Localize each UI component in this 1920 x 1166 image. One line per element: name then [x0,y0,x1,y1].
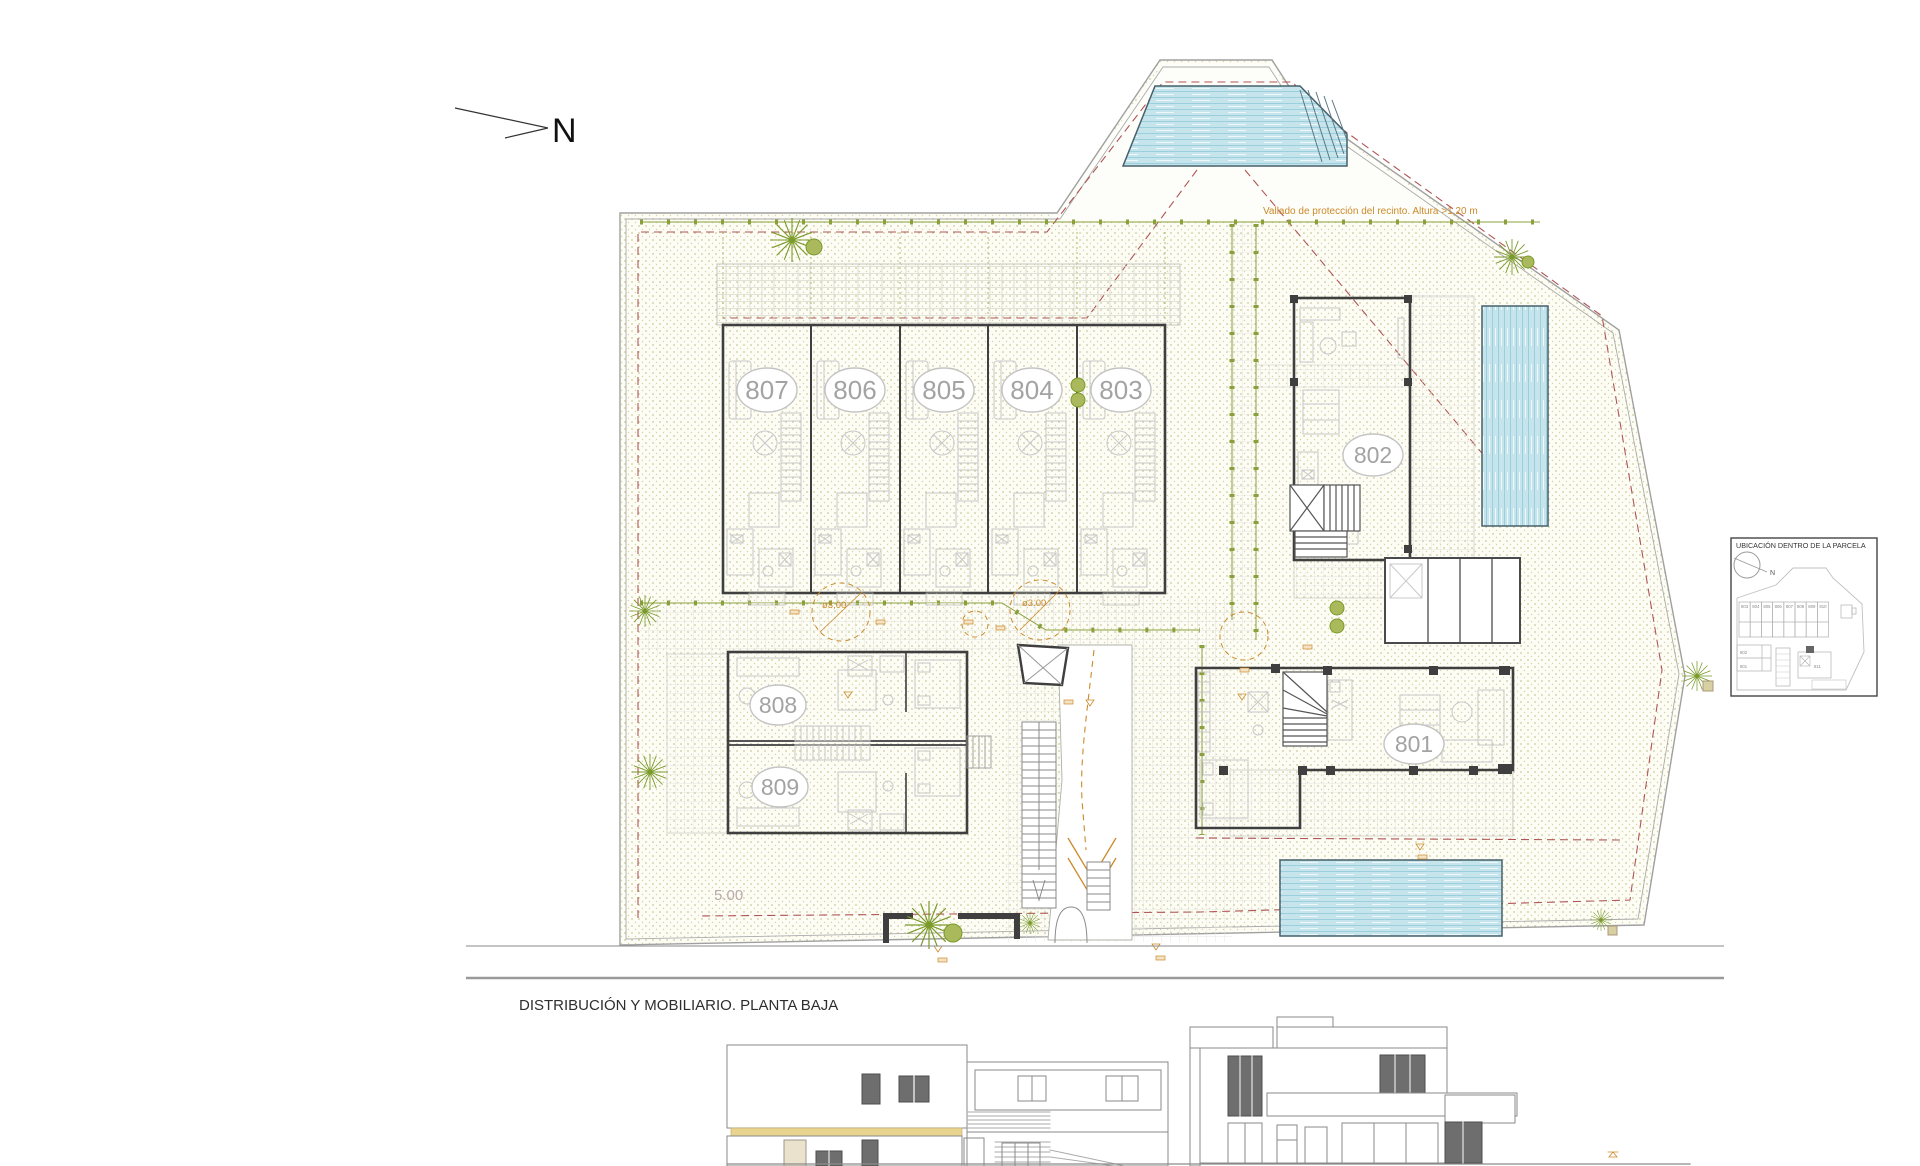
inset-unit-808: 808 [1797,604,1805,609]
unit-808-label: 808 [759,692,797,718]
elevations [727,1017,1690,1166]
pool-801 [1280,860,1502,936]
unit-806-label: 806 [833,375,876,405]
unit-801-label: 801 [1395,731,1433,757]
inset-unit-811: 811 [1814,664,1821,669]
utility-block [1385,558,1520,643]
unit-804-label: 804 [1010,375,1053,405]
unit-802-label: 802 [1354,442,1392,468]
inset-unit-801: 801 [1740,664,1748,669]
terrace-801 [1230,770,1513,836]
elevation-left-house [727,1045,967,1166]
inset-unit-802: 802 [1740,650,1748,655]
inset-map: UBICACIÓN DENTRO DE LA PARCELA N 803 804… [1731,538,1877,696]
elevation-level-mark [1608,1152,1618,1157]
terrace-808-809 [667,654,728,833]
elevation-right-villa [1190,1017,1517,1166]
inset-unit-803: 803 [1741,604,1749,609]
inset-north-label: N [1770,570,1775,577]
inset-title: UBICACIÓN DENTRO DE LA PARCELA [1736,541,1866,550]
north-label: N [552,112,577,150]
floor-plan-sheet: 807 806 805 804 803 802 [0,0,1920,1166]
north-arrow: N [455,108,577,150]
site-plan-svg: 807 806 805 804 803 802 [0,0,1920,1166]
road-and-title: DISTRIBUCIÓN Y MOBILIARIO. PLANTA BAJA [466,946,1724,1014]
inset-unit-809: 809 [1808,604,1816,609]
elevation-middle-house [964,1062,1168,1166]
setback-dim: 5.00 [714,887,743,904]
turning-circle-left-dim: ø3,00 [822,600,846,611]
inset-unit-805: 805 [1763,604,1771,609]
unit-805-label: 805 [922,375,965,405]
terrace-802 [1410,296,1474,564]
inset-unit-807: 807 [1786,604,1794,609]
plan-title: DISTRIBUCIÓN Y MOBILIARIO. PLANTA BAJA [519,997,838,1014]
fence-note: Vallado de protección del recinto. Altur… [1263,206,1478,217]
inset-unit-806: 806 [1775,604,1783,609]
inset-unit-804: 804 [1752,604,1760,609]
stairs-801 [1283,672,1327,746]
planter [1018,645,1068,685]
unit-809-label: 809 [761,774,799,800]
patio-strip [717,264,1180,325]
pool-802 [1482,306,1548,526]
pool-top [1123,86,1347,166]
turning-circle-right-dim: ø3.00 [1022,598,1046,609]
unit-807-label: 807 [745,375,788,405]
unit-803-label: 803 [1099,375,1142,405]
inset-unit-810: 810 [1819,604,1827,609]
